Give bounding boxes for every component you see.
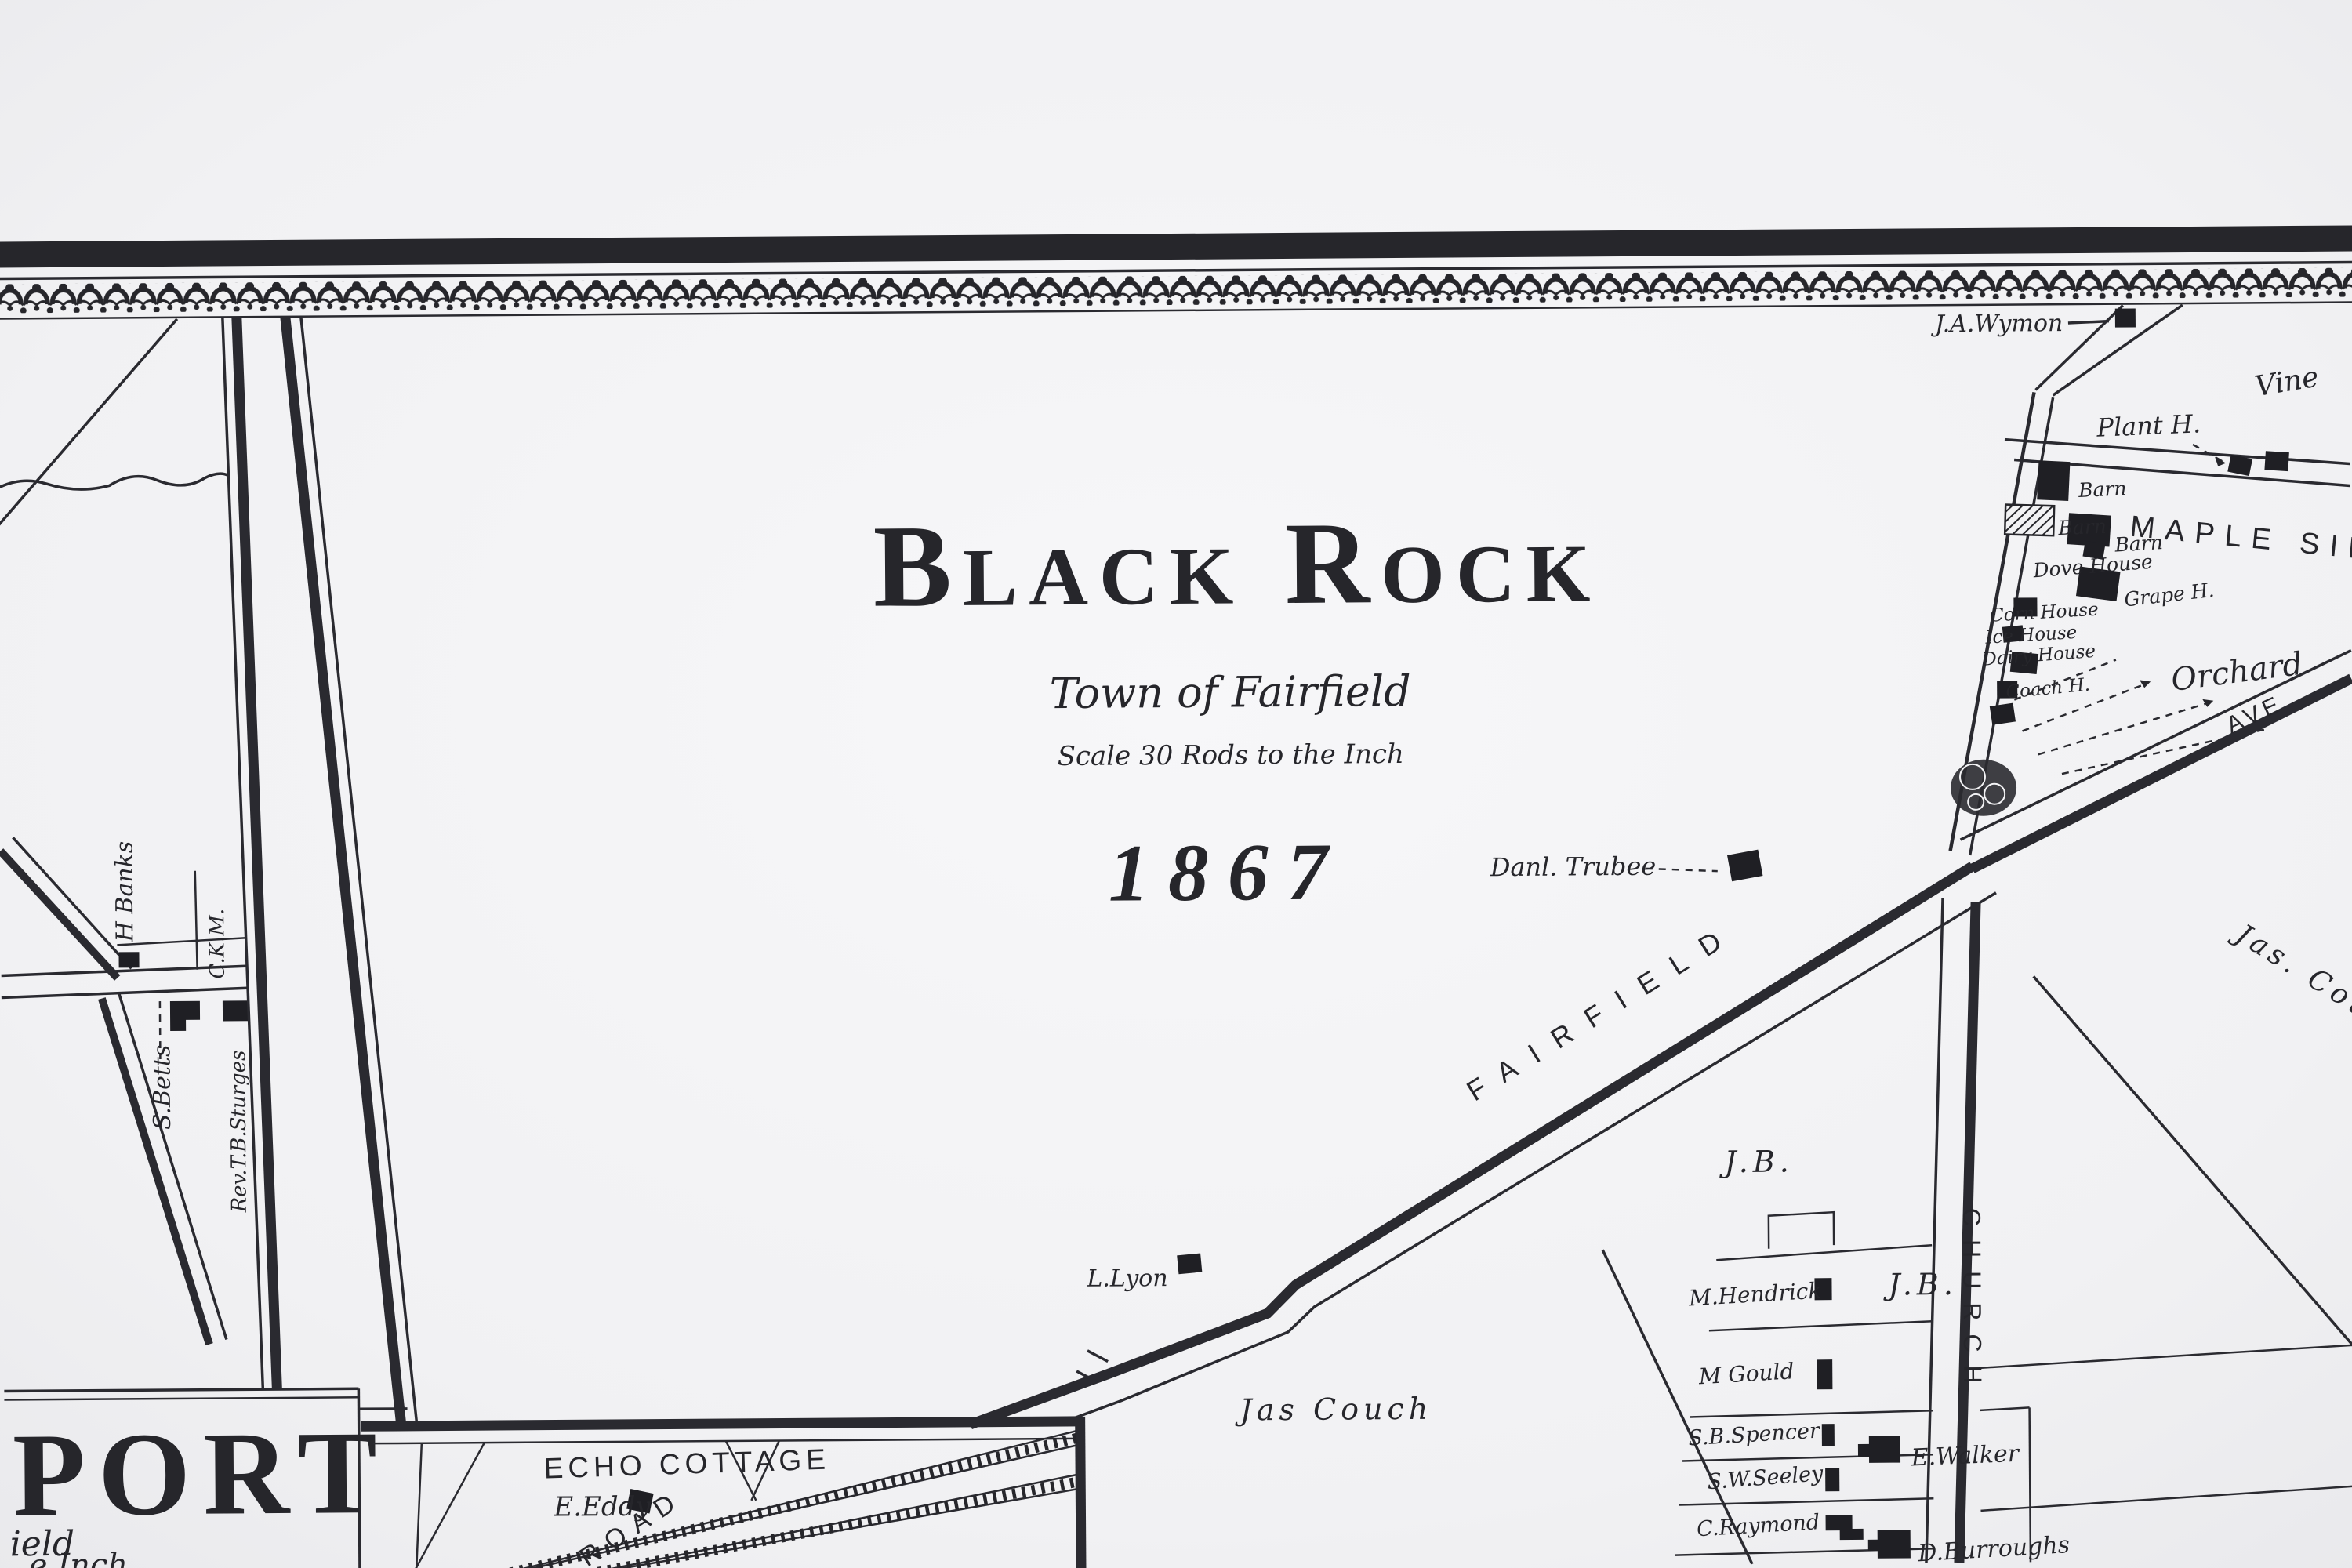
building-farm-5 xyxy=(1990,703,2016,725)
building-sturges xyxy=(223,1000,249,1021)
label-owner-wymon: J.A.Wymon xyxy=(1930,310,2063,338)
label-owner-banks: H Banks xyxy=(111,841,139,943)
label-owner-lyon: L.Lyon xyxy=(1086,1265,1167,1293)
label-plant-h: Plant H. xyxy=(2096,408,2201,443)
wymon-leader-dash xyxy=(2068,321,2109,323)
label-owner-jb-upper: J.B. xyxy=(1719,1145,1794,1180)
tree-cluster xyxy=(1951,760,2017,817)
building-trubee xyxy=(1727,850,1762,882)
building-wymon xyxy=(2115,308,2136,327)
map-title: Black Rock xyxy=(873,496,1602,631)
label-barn-b: Barn xyxy=(2057,515,2107,540)
map-canvas: H Banks C.K.M. S.Betts Rev.T.B.Sturges P… xyxy=(0,0,2352,1568)
label-barn-a: Barn xyxy=(2078,477,2127,502)
map-sheet: H Banks C.K.M. S.Betts Rev.T.B.Sturges P… xyxy=(0,0,2352,1568)
building-barn-hatched xyxy=(2005,505,2054,536)
label-owner-sturges: Rev.T.B.Sturges xyxy=(227,1050,251,1213)
map-scale-note: Scale 30 Rods to the Inch xyxy=(1057,739,1404,772)
building-lyon xyxy=(1177,1254,1202,1275)
map-region: Town of Fairfield xyxy=(1049,666,1410,718)
label-owner-trubee: Danl. Trubee xyxy=(1490,851,1657,882)
label-owner-betts: S.Betts xyxy=(148,1045,176,1131)
building-spencer xyxy=(1822,1424,1835,1446)
building-gould xyxy=(1817,1359,1832,1389)
map-year: 1867 xyxy=(1108,826,1347,918)
building-seeley xyxy=(1825,1468,1839,1491)
building-banks xyxy=(118,952,139,967)
inset-scale-fragment: e Inch xyxy=(29,1547,128,1568)
label-owner-ckm: C.K.M. xyxy=(205,909,230,979)
building-plant-b xyxy=(2264,451,2288,471)
label-owner-walker: E.Walker xyxy=(1910,1440,2020,1472)
echo-right-border xyxy=(1080,1417,1081,1568)
building-barn-a xyxy=(2037,460,2070,501)
inset-title-fragment: PORT xyxy=(13,1406,390,1541)
label-owner-jb-lower: J.B. xyxy=(1882,1267,1958,1302)
label-owner-jas-couch: Jas Couch xyxy=(1234,1392,1432,1428)
